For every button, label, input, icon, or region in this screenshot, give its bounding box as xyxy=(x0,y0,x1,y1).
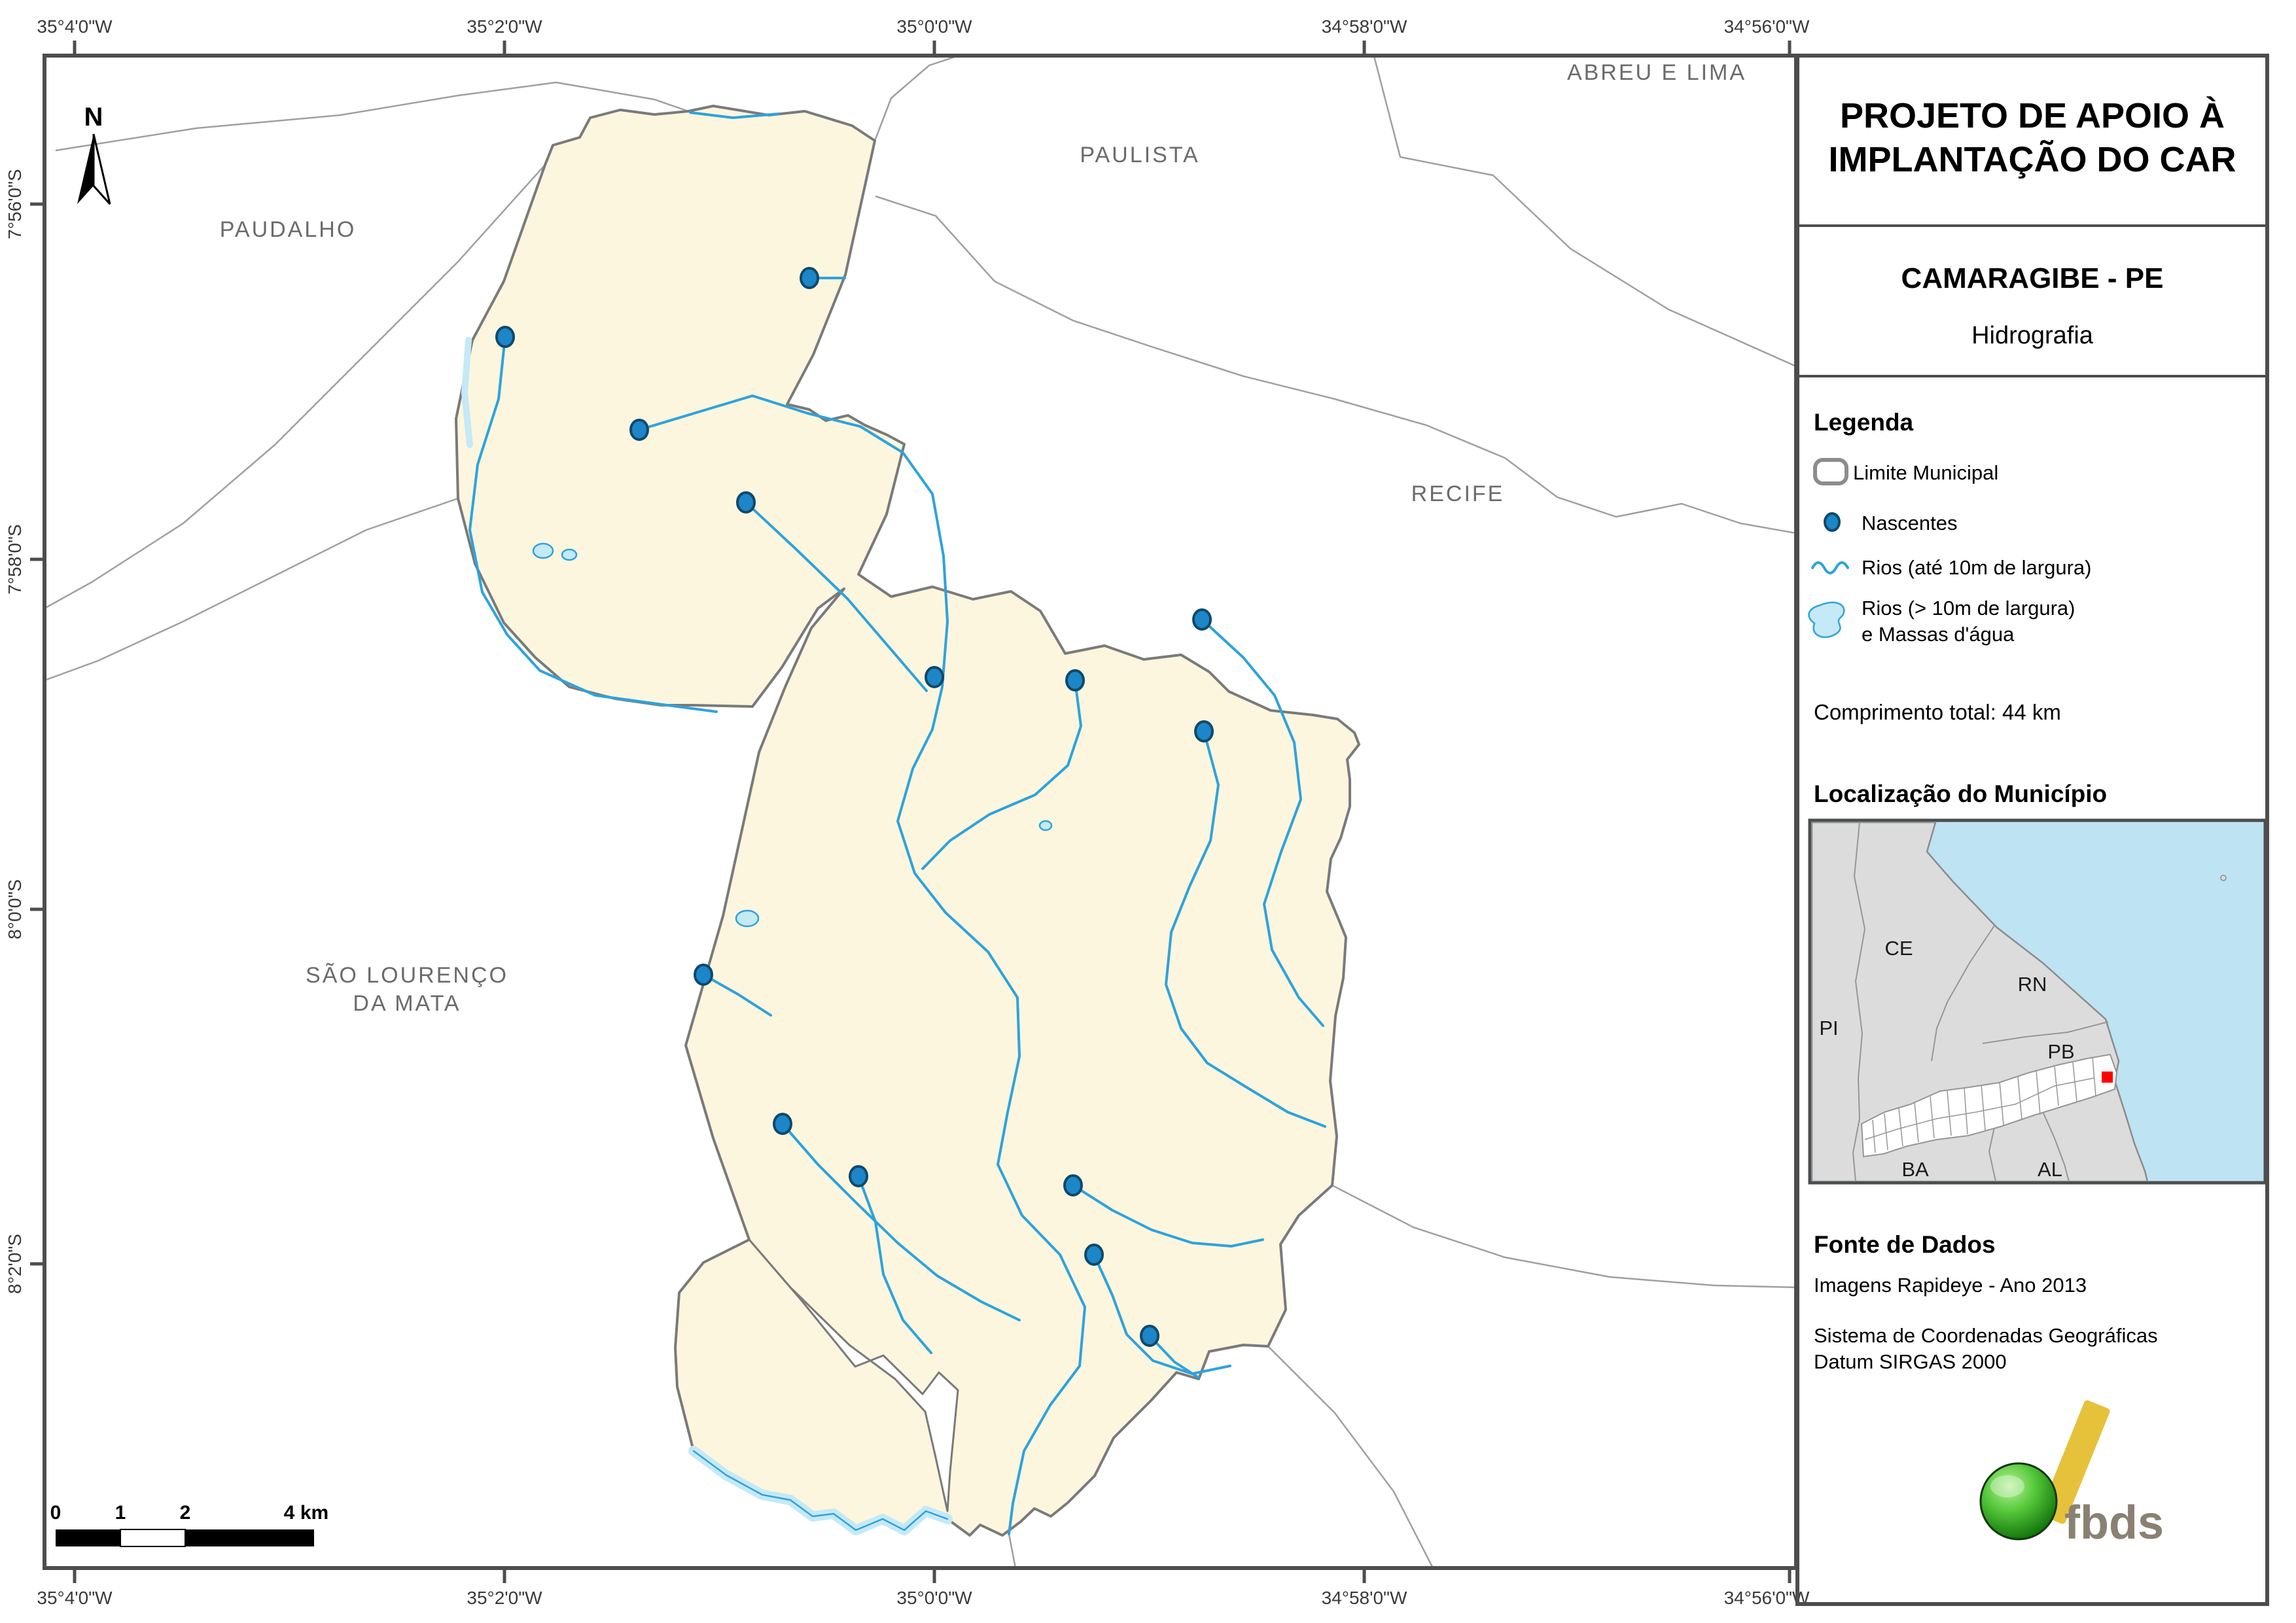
axis-top-3: 34°58'0"W xyxy=(1322,16,1407,37)
legend-label-rios: Rios (até 10m de largura) xyxy=(1862,556,2092,579)
locator-highlight-marker xyxy=(2102,1072,2113,1083)
north-label: N xyxy=(84,103,103,131)
source-crs-2: Datum SIRGAS 2000 xyxy=(1814,1350,2007,1373)
label-sao-lourenco-2: DA MATA xyxy=(353,991,461,1016)
axis-bottom-1: 35°2'0"W xyxy=(467,1588,542,1608)
legend-label-rios-large-2: e Massas d'água xyxy=(1862,623,2015,646)
source-heading: Fonte de Dados xyxy=(1814,1231,1996,1258)
scale-1: 1 xyxy=(115,1502,126,1524)
locator-map: CE RN PI PB BA AL xyxy=(1810,820,2265,1183)
axis-top-2: 35°0'0"W xyxy=(896,16,972,37)
scale-2: 2 xyxy=(180,1502,191,1524)
source-crs-1: Sistema de Coordenadas Geográficas xyxy=(1814,1324,2158,1347)
fbds-logo: fbds xyxy=(1981,1399,2164,1549)
axis-bottom-0: 35°4'0"W xyxy=(37,1588,113,1608)
state-label-rn: RN xyxy=(2018,973,2047,996)
axis-top-1: 35°2'0"W xyxy=(467,16,542,37)
side-panel: PROJETO DE APOIO À IMPLANTAÇÃO DO CAR CA… xyxy=(1797,56,2267,1604)
label-abreu-e-lima: ABREU E LIMA xyxy=(1567,60,1746,85)
logo-green-sphere xyxy=(1981,1463,2057,1539)
legend-heading: Legenda xyxy=(1814,409,1914,436)
legend-symbol-limite xyxy=(1815,460,1846,483)
legend-symbol-massas xyxy=(1809,602,1844,637)
main-map: PAUDALHO PAULISTA ABREU E LIMA RECIFE SÃ… xyxy=(5,16,1810,1608)
label-paulista: PAULISTA xyxy=(1080,143,1199,167)
municipality-boundary xyxy=(456,106,1359,1535)
axis-top-0: 35°4'0"W xyxy=(37,16,113,37)
total-length: Comprimento total: 44 km xyxy=(1814,700,2061,724)
label-sao-lourenco-1: SÃO LOURENÇO xyxy=(306,963,508,988)
logo-sphere-highlight xyxy=(1990,1475,2024,1497)
project-title-line2: IMPLANTAÇÃO DO CAR xyxy=(1829,140,2236,179)
axis-left-1: 7°58'0"S xyxy=(5,524,25,594)
logo-text: fbds xyxy=(2064,1497,2164,1549)
legend-symbol-rios xyxy=(1812,563,1848,573)
map-theme: Hidrografia xyxy=(1971,322,2094,349)
label-paudalho: PAUDALHO xyxy=(220,217,357,242)
legend-label-rios-large-1: Rios (> 10m de largura) xyxy=(1862,597,2075,620)
legend-label-nascentes: Nascentes xyxy=(1862,512,1957,534)
scale-bar: 0 1 2 4 km xyxy=(50,1502,329,1546)
axis-left-0: 7°56'0"S xyxy=(5,169,25,239)
location-heading: Localização do Município xyxy=(1814,780,2107,807)
state-label-pb: PB xyxy=(2047,1040,2074,1063)
legend-symbol-nascentes xyxy=(1825,514,1839,531)
north-arrow-icon xyxy=(77,134,110,204)
state-label-ce: CE xyxy=(1884,937,1913,960)
state-label-ba: BA xyxy=(1901,1158,1929,1181)
axis-bottom-2: 35°0'0"W xyxy=(896,1588,972,1608)
axis-top-4: 34°56'0"W xyxy=(1724,16,1810,37)
municipality-title: CAMARAGIBE - PE xyxy=(1901,262,2164,294)
scale-0: 0 xyxy=(50,1502,62,1524)
locator-island xyxy=(2221,875,2226,881)
state-label-al: AL xyxy=(2038,1158,2062,1181)
axis-left-3: 8°2'0"S xyxy=(5,1234,25,1294)
axis-bottom-3: 34°58'0"W xyxy=(1322,1588,1407,1608)
legend-label-limite: Limite Municipal xyxy=(1853,461,1998,484)
map-layout-canvas: PAUDALHO PAULISTA ABREU E LIMA RECIFE SÃ… xyxy=(0,0,2296,1623)
axis-left-2: 8°0'0"S xyxy=(5,879,25,939)
state-label-pi: PI xyxy=(1819,1017,1838,1039)
source-imagery: Imagens Rapideye - Ano 2013 xyxy=(1814,1274,2087,1297)
label-recife: RECIFE xyxy=(1411,481,1505,506)
project-title-line1: PROJETO DE APOIO À xyxy=(1840,96,2225,135)
scale-4km: 4 km xyxy=(284,1502,328,1524)
